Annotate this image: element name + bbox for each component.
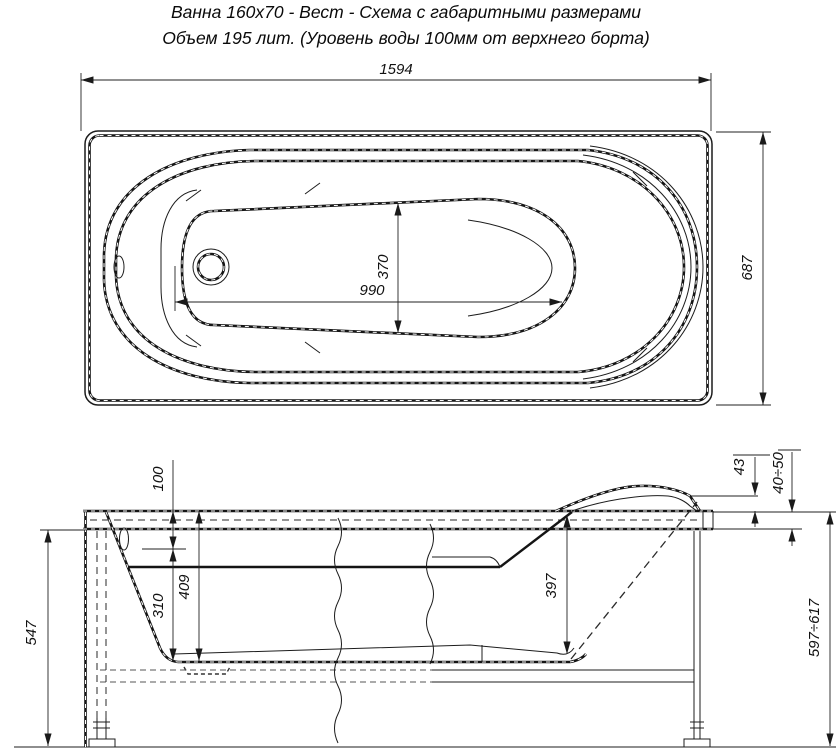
backrest-arc-1 <box>583 155 691 379</box>
dim-headrest-rise: 43 <box>731 455 770 527</box>
dim-height-under-rim: 547 <box>23 530 84 746</box>
dim-label-43: 43 <box>731 458 748 475</box>
bottom-shell-line <box>178 654 586 662</box>
dim-label-597-617: 597÷617 <box>806 598 823 657</box>
top-view: 1594 687 990 370 <box>81 61 771 405</box>
dim-label-40-50: 40÷50 <box>770 452 787 494</box>
drawing-canvas: Ванна 160х70 - Вест - Схема с габаритным… <box>0 0 836 752</box>
dim-overall-length: 1594 <box>81 61 711 131</box>
seat-contour-left <box>161 190 197 347</box>
left-foot <box>89 718 115 747</box>
left-leg <box>97 531 106 720</box>
right-leg <box>694 531 700 730</box>
dim-bottom-length: 990 <box>175 266 562 311</box>
dim-rim-height: 40÷50 <box>713 450 802 546</box>
dim-label-409: 409 <box>176 574 193 600</box>
drawing-title: Ванна 160х70 - Вест - Схема с габаритным… <box>171 2 641 22</box>
dim-label-100: 100 <box>150 466 167 492</box>
tub-inner-contour <box>116 161 684 372</box>
overflow-hole-side <box>120 528 129 550</box>
dim-depth-total: 409 <box>176 511 199 661</box>
dim-label-397: 397 <box>543 573 560 599</box>
bottom-inner-line <box>174 645 574 654</box>
dim-bottom-width: 370 <box>375 203 398 333</box>
ledge-upper-line <box>432 557 500 567</box>
dim-water-level: 100 <box>150 460 173 549</box>
dim-label-687: 687 <box>739 255 756 281</box>
drain-icon <box>198 254 224 280</box>
dim-overall-width: 687 <box>716 132 771 405</box>
dim-label-1594: 1594 <box>379 61 412 78</box>
drawing-subtitle: Объем 195 лит. (Уровень воды 100мм от ве… <box>162 28 650 48</box>
dim-label-990: 990 <box>359 282 385 299</box>
dim-label-370: 370 <box>375 254 392 280</box>
title-block: Ванна 160х70 - Вест - Схема с габаритным… <box>162 2 650 48</box>
bathtub-dimension-drawing: Ванна 160х70 - Вест - Схема с габаритным… <box>0 0 836 752</box>
dim-depth-rear: 397 <box>543 515 567 654</box>
backrest-arc-2 <box>590 146 703 388</box>
break-line-left <box>335 518 342 743</box>
right-foot <box>684 722 710 747</box>
break-line-right <box>427 524 434 664</box>
front-wall-slope <box>106 512 178 662</box>
dim-overall-height: 597÷617 <box>713 512 836 746</box>
side-view: 547 100 310 409 397 43 <box>14 450 836 747</box>
rear-slope-hidden <box>571 502 697 659</box>
dim-label-310: 310 <box>150 593 167 619</box>
dim-label-547: 547 <box>23 620 40 646</box>
